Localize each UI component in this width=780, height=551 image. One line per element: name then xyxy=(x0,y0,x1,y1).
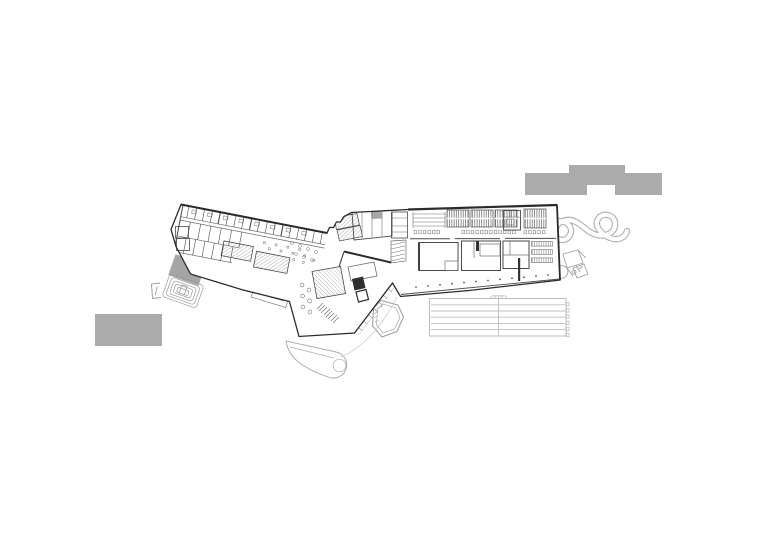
context-building-southwest xyxy=(95,314,162,346)
rock-feature xyxy=(373,301,404,338)
garden-door-outline xyxy=(152,283,162,299)
site-plan-svg xyxy=(0,0,780,551)
context-building-north xyxy=(525,165,662,195)
entry-ramp-paddle xyxy=(286,341,347,378)
left-annex-cells xyxy=(176,227,190,251)
right-shelf-bands xyxy=(532,242,553,263)
running-track xyxy=(430,296,570,337)
floor-plan-canvas xyxy=(0,0,780,551)
